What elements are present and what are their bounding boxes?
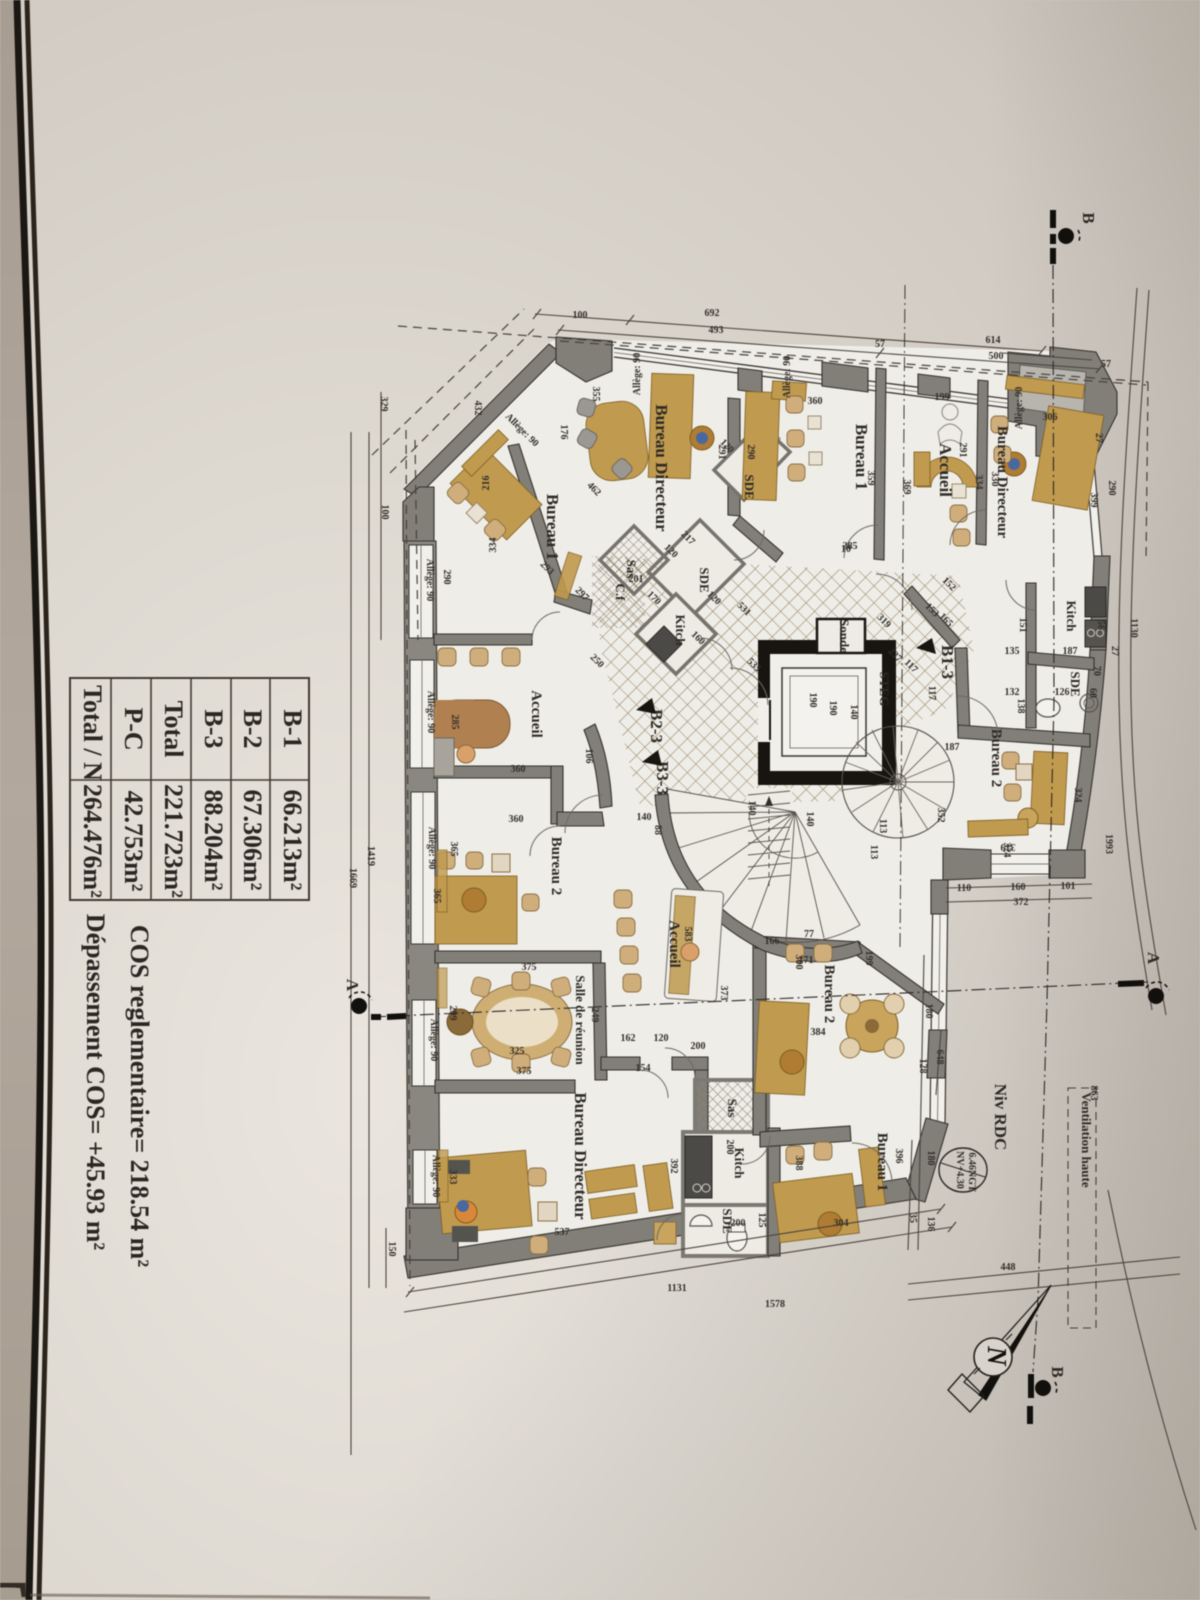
svg-text:B1-3: B1-3	[938, 645, 957, 679]
svg-text:290: 290	[745, 445, 756, 460]
svg-text:375: 375	[522, 962, 537, 973]
svg-text:200: 200	[731, 1218, 746, 1229]
svg-text:Allège: 90: Allège: 90	[782, 356, 793, 399]
svg-text:392: 392	[668, 1159, 679, 1174]
svg-text:201: 201	[629, 574, 644, 585]
svg-text:35: 35	[907, 1213, 918, 1223]
svg-text:384: 384	[811, 1027, 826, 1038]
svg-text:199: 199	[935, 392, 950, 403]
svg-text:B3-3: B3-3	[653, 761, 672, 795]
svg-text:Bureau 2: Bureau 2	[548, 837, 564, 895]
svg-text:176: 176	[558, 425, 569, 440]
svg-text:199: 199	[863, 951, 874, 966]
svg-text:648: 648	[934, 1050, 945, 1065]
svg-text:NV+4.30: NV+4.30	[954, 1151, 965, 1189]
svg-text:Sas: Sas	[725, 1099, 740, 1118]
svg-text:537: 537	[555, 1227, 570, 1238]
svg-text:113: 113	[868, 845, 879, 859]
svg-text:101: 101	[1061, 881, 1076, 892]
svg-text:319: 319	[1001, 841, 1016, 852]
svg-text:359: 359	[865, 471, 876, 486]
svg-text:Accueil: Accueil	[528, 690, 544, 737]
svg-text:221.723m²: 221.723m²	[159, 784, 188, 898]
svg-text:200: 200	[724, 1140, 735, 1155]
svg-text:P-C: P-C	[119, 707, 148, 750]
svg-text:334: 334	[488, 538, 499, 553]
svg-text:166: 166	[765, 936, 780, 947]
svg-text:N: N	[982, 1345, 1012, 1367]
svg-text:B: B	[1079, 212, 1098, 223]
svg-text:180: 180	[923, 1004, 934, 1019]
svg-text:60: 60	[1087, 688, 1098, 698]
svg-text:Ventilation haute: Ventilation haute	[1079, 1092, 1094, 1187]
svg-text:264.476m²: 264.476m²	[78, 784, 107, 898]
svg-text:140: 140	[637, 812, 652, 823]
svg-text:128: 128	[917, 1059, 928, 1074]
svg-text:Sonde: Sonde	[837, 619, 852, 653]
svg-text:SDE: SDE	[1068, 671, 1083, 696]
svg-text:Kitch: Kitch	[673, 614, 688, 646]
svg-text:Allège: 90: Allège: 90	[428, 1019, 439, 1062]
svg-text:Bureau 1: Bureau 1	[874, 1133, 890, 1191]
svg-text:304: 304	[834, 1218, 849, 1229]
svg-text:160: 160	[1011, 882, 1026, 893]
svg-text:Dépassement COS= +45.93 m²: Dépassement COS= +45.93 m²	[81, 914, 110, 1251]
svg-text:493: 493	[709, 325, 724, 336]
svg-text:863: 863	[1088, 1086, 1099, 1101]
svg-text:375: 375	[517, 1066, 532, 1077]
svg-text:200: 200	[691, 1041, 706, 1052]
svg-text:B-2: B-2	[238, 710, 267, 749]
svg-text:Allège: 90: Allège: 90	[430, 1155, 441, 1198]
svg-text:300: 300	[793, 955, 804, 970]
svg-text:190: 190	[827, 701, 838, 716]
svg-text:187: 187	[1063, 646, 1078, 657]
svg-text:249: 249	[589, 1008, 600, 1023]
svg-text:A: A	[343, 979, 362, 992]
svg-text:190: 190	[807, 693, 818, 708]
svg-text:162: 162	[621, 1033, 636, 1044]
svg-text:A: A	[1144, 952, 1163, 965]
svg-text:136: 136	[925, 1217, 936, 1232]
svg-text:Bureau 1: Bureau 1	[543, 494, 562, 560]
svg-text:291: 291	[957, 443, 968, 458]
svg-text:B-1: B-1	[278, 710, 307, 749]
svg-text:334: 334	[973, 475, 984, 490]
svg-text:151: 151	[1017, 618, 1028, 633]
svg-text:306: 306	[1043, 412, 1058, 423]
svg-text:126: 126	[1055, 687, 1070, 698]
svg-text:325: 325	[510, 1046, 525, 1057]
svg-text:154: 154	[636, 1063, 651, 1074]
svg-text:138: 138	[1015, 699, 1026, 714]
svg-text:Allège: 90: Allège: 90	[425, 691, 436, 734]
svg-text:Bureau 2: Bureau 2	[821, 965, 837, 1023]
svg-text:150: 150	[386, 1242, 397, 1257]
svg-text:216: 216	[481, 476, 492, 491]
svg-text:120: 120	[654, 1033, 669, 1044]
svg-text:100: 100	[573, 310, 588, 321]
svg-text:329: 329	[378, 397, 389, 412]
svg-text:360: 360	[808, 396, 823, 407]
svg-text:Accueil: Accueil	[936, 443, 955, 497]
svg-text:1578: 1578	[765, 1299, 785, 1310]
svg-text:67.306m²: 67.306m²	[238, 790, 267, 891]
svg-text:57: 57	[1101, 359, 1111, 370]
svg-text:E: E	[0, 1562, 33, 1600]
svg-text:500: 500	[989, 351, 1004, 362]
svg-text:614: 614	[986, 335, 1001, 346]
svg-text:1669: 1669	[347, 868, 358, 888]
svg-text:360: 360	[509, 814, 524, 825]
svg-text:180: 180	[925, 1151, 936, 1166]
svg-text:399: 399	[1088, 493, 1099, 508]
svg-text:27: 27	[1109, 646, 1120, 656]
svg-text:333: 333	[447, 1170, 458, 1185]
svg-text:135: 135	[1005, 646, 1020, 657]
svg-text:Total / N: Total / N	[78, 685, 107, 781]
svg-text:6.46NGT: 6.46NGT	[966, 1152, 977, 1192]
svg-text:Bureau 2: Bureau 2	[988, 729, 1004, 787]
svg-text:Allège: 90: Allège: 90	[632, 353, 643, 396]
svg-text:Salle de réunion: Salle de réunion	[573, 975, 588, 1065]
svg-text:Accueil: Accueil	[666, 920, 682, 967]
svg-text:Niv RDC: Niv RDC	[991, 1084, 1010, 1151]
svg-text:STEG: STEG	[877, 672, 892, 707]
svg-text:187: 187	[945, 742, 960, 753]
svg-text:57: 57	[875, 339, 885, 350]
svg-text:B-3: B-3	[199, 710, 228, 749]
svg-text:113: 113	[877, 819, 888, 833]
svg-text:140: 140	[804, 812, 815, 827]
svg-text:Bureau Directeur: Bureau Directeur	[652, 404, 671, 532]
svg-text:360: 360	[511, 764, 526, 775]
svg-text:290: 290	[1106, 481, 1117, 496]
svg-text:SDE: SDE	[697, 567, 712, 592]
svg-text:B2-3: B2-3	[647, 709, 666, 743]
svg-text:330: 330	[989, 472, 1000, 487]
svg-text:C.f: C.f	[613, 584, 628, 602]
svg-text:Total: Total	[159, 701, 188, 758]
svg-text:365: 365	[448, 842, 459, 857]
svg-text:1131: 1131	[667, 1283, 686, 1294]
svg-text:117: 117	[926, 686, 937, 700]
svg-text:132: 132	[1005, 687, 1020, 698]
svg-text:B: B	[1048, 1366, 1067, 1377]
svg-text:66.213m²: 66.213m²	[278, 790, 307, 891]
svg-text:88.204m²: 88.204m²	[199, 790, 228, 891]
svg-text:396: 396	[893, 1149, 904, 1164]
svg-text:352: 352	[935, 808, 946, 823]
svg-text:42.753m²: 42.753m²	[119, 791, 148, 892]
svg-text:365: 365	[431, 889, 442, 904]
svg-text:10: 10	[841, 544, 851, 555]
svg-text:290: 290	[441, 570, 452, 585]
svg-text:27: 27	[1093, 433, 1104, 443]
svg-text:Allège: 90: Allège: 90	[424, 559, 435, 602]
svg-text:Bureau Directeur: Bureau Directeur	[571, 1092, 590, 1220]
svg-text:56: 56	[1095, 620, 1106, 630]
svg-text:1130: 1130	[1128, 618, 1139, 637]
svg-text:372: 372	[1014, 897, 1029, 908]
svg-text:583: 583	[682, 927, 693, 942]
svg-text:125: 125	[756, 1213, 767, 1228]
svg-text:70: 70	[1091, 666, 1102, 676]
svg-text:Allège: 90: Allège: 90	[426, 827, 437, 870]
svg-text:110: 110	[957, 883, 971, 894]
svg-text:88: 88	[652, 825, 663, 835]
svg-text:432: 432	[472, 401, 483, 416]
svg-text:355: 355	[590, 387, 601, 402]
svg-text:77: 77	[804, 929, 814, 940]
svg-text:Kitch: Kitch	[1064, 600, 1079, 632]
svg-text:COS reglementaire= 218.54 m²: COS reglementaire= 218.54 m²	[125, 925, 154, 1267]
svg-text:1419: 1419	[365, 846, 376, 866]
svg-text:1993: 1993	[1103, 834, 1114, 854]
svg-text:SDE: SDE	[742, 474, 757, 499]
svg-text:140: 140	[848, 705, 859, 720]
svg-text:106: 106	[583, 749, 594, 764]
svg-text:388: 388	[793, 1156, 804, 1171]
svg-text:324: 324	[1072, 788, 1083, 803]
svg-text:140: 140	[746, 801, 757, 816]
svg-text:285: 285	[449, 715, 460, 730]
svg-text:100: 100	[379, 505, 390, 520]
svg-text:448: 448	[1001, 1262, 1016, 1273]
svg-text:692: 692	[705, 308, 720, 319]
svg-text:369: 369	[901, 480, 912, 495]
svg-text:373: 373	[718, 986, 729, 1001]
svg-text:Allège: 90: Allège: 90	[1014, 387, 1025, 430]
